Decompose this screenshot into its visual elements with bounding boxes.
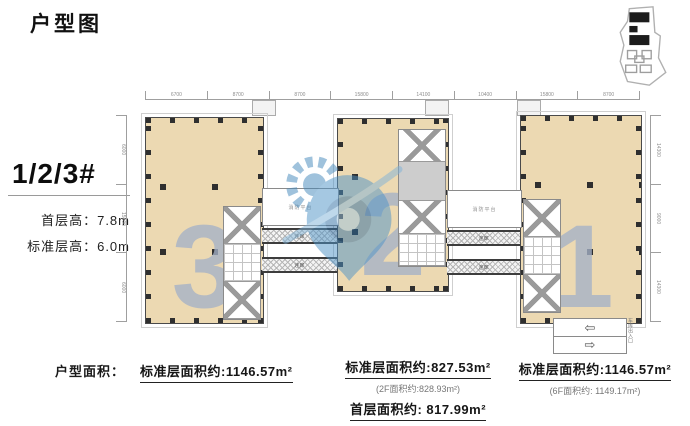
building-2-footprint: 2	[337, 118, 449, 292]
elevator-lobby	[399, 162, 445, 201]
stairwell-icon	[224, 207, 260, 244]
stairwell-icon	[224, 282, 260, 319]
dimension-line-top: 6700 8700 8700 15800 14100 10400 15800 8…	[145, 91, 640, 100]
elevator-bank-icon	[524, 237, 560, 274]
building-1-footprint: 1	[520, 115, 642, 324]
unit-info-panel: 1/2/3# 首层高：7.8m 标准层高：6.0m	[8, 158, 130, 260]
building-2-core	[398, 129, 446, 267]
stairwell-icon	[524, 200, 560, 237]
fire-platform: 消防平台	[262, 188, 339, 226]
roof-structure	[517, 100, 541, 116]
dimension-line-right: 14300 9000 14300	[650, 115, 661, 322]
building-3-footprint: 3	[145, 117, 264, 324]
connecting-corridor: 连廊	[447, 230, 520, 246]
unit2-2f-area-note: (2F面积约:828.93m²)	[322, 382, 514, 395]
stairwell-icon	[399, 201, 445, 233]
fire-platform: 消防平台	[447, 190, 522, 228]
unit1-6f-area-note: (6F面积约: 1149.17m²)	[505, 384, 685, 397]
building-1-core	[523, 199, 561, 313]
floor-plan-page: 户型图 1/2/3# 首层高：7.8m 标准层高：6.0m 6700 8700 …	[0, 0, 690, 426]
ramp-arrow-left-icon: ⇦	[554, 319, 626, 336]
site-location-key-icon	[602, 4, 684, 88]
unit3-standard-area: 标准层面积约:1146.57m²	[140, 361, 293, 383]
unit1-standard-area: 标准层面积约:1146.57m²	[519, 359, 672, 381]
stairwell-icon	[524, 275, 560, 312]
unit-number-label: 1/2/3#	[8, 158, 130, 190]
garage-ramp: ⇦ ⇨	[553, 318, 627, 354]
standard-floor-height: 标准层高：6.0m	[8, 234, 130, 260]
unit1-area-column: 标准层面积约:1146.57m² (6F面积约: 1149.17m²)	[505, 359, 685, 397]
unit2-standard-area: 标准层面积约:827.53m²	[345, 357, 490, 379]
roof-structure	[425, 100, 449, 116]
building-3-core	[223, 206, 261, 320]
unit2-first-floor-area: 首层面积约: 817.99m²	[350, 399, 486, 421]
roof-structure	[252, 100, 276, 116]
area-section-label: 户型面积：	[55, 361, 125, 380]
elevator-bank-icon	[224, 244, 260, 281]
elevator-bank-icon	[399, 234, 445, 266]
ramp-arrow-right-icon: ⇨	[554, 336, 626, 354]
stairwell-icon	[399, 130, 445, 162]
connecting-corridor: 连廊	[447, 259, 520, 275]
garage-ramp-label: 车库出入口	[627, 318, 634, 352]
page-title: 户型图	[30, 8, 102, 38]
connecting-corridor: 连廊	[262, 257, 337, 273]
dimension-line-left: 6000 15000 6000	[116, 115, 127, 322]
unit2-area-column: 标准层面积约:827.53m² (2F面积约:828.93m²) 首层面积约: …	[322, 357, 514, 426]
first-floor-height: 首层高：7.8m	[8, 208, 130, 234]
divider	[8, 195, 130, 196]
connecting-corridor: 连廊	[262, 228, 337, 244]
